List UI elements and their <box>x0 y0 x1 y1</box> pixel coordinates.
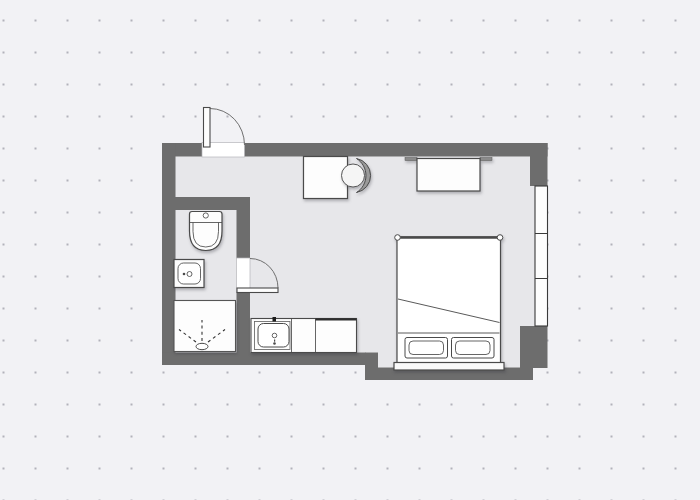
entrance-door-leaf <box>204 108 211 148</box>
bed <box>394 235 504 370</box>
wall-bathroom-right-upper <box>237 210 251 258</box>
wardrobe-tick-right <box>480 158 492 161</box>
desk-top <box>304 157 348 199</box>
shower <box>174 301 236 352</box>
bathroom-door-leaf <box>237 288 278 293</box>
bed-headboard <box>394 363 504 371</box>
wardrobe-tick-left <box>405 158 417 161</box>
kitchen-counter <box>251 317 357 353</box>
bed-post-right <box>497 235 503 241</box>
kitchen-sink-drain-ring <box>272 333 277 338</box>
kitchen-faucet <box>273 317 277 322</box>
bed-post-left <box>395 235 401 241</box>
bathroom-door-threshold <box>237 258 251 292</box>
window-frame <box>535 186 548 326</box>
floor-plan-svg <box>0 0 700 500</box>
washbasin-tap-dot <box>183 273 186 276</box>
desk <box>304 157 348 199</box>
entrance-door-swing-arc <box>210 109 245 146</box>
washbasin <box>174 260 204 288</box>
kitchen-sink-drain-dash <box>274 340 275 342</box>
wardrobe-body <box>417 159 480 192</box>
wall-pier-below-window <box>520 326 548 368</box>
toilet-flush-button <box>203 213 208 218</box>
kitchen-sink-drain-dot <box>273 342 276 345</box>
wardrobe <box>405 158 492 192</box>
washbasin-bowl <box>178 263 201 284</box>
entrance-door <box>202 108 245 158</box>
wall-step <box>365 353 378 381</box>
shower-drain <box>196 343 208 349</box>
wall-bottom-left <box>162 353 366 366</box>
window-right <box>535 186 548 326</box>
wall-bathroom-right-lower <box>237 292 251 353</box>
wall-bathroom-top <box>175 197 250 210</box>
chair-seat <box>342 164 365 187</box>
wall-pier-top-right <box>530 143 548 186</box>
floor-plan-page <box>0 0 700 500</box>
toilet <box>190 212 223 251</box>
